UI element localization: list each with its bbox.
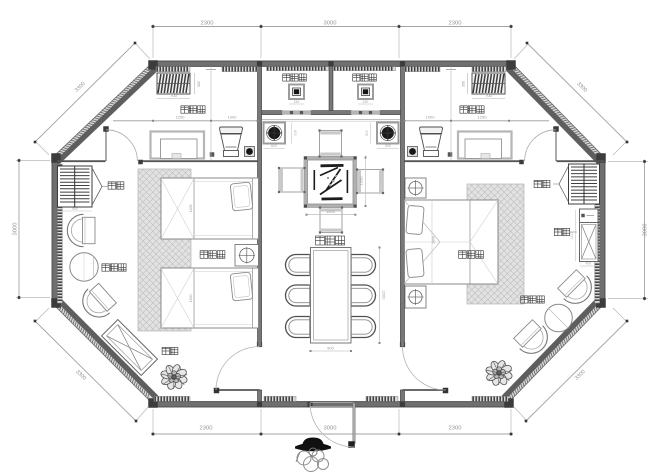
svg-text:900: 900	[327, 346, 334, 351]
svg-text:400: 400	[586, 262, 592, 266]
svg-text:1000: 1000	[228, 115, 238, 120]
svg-text:600: 600	[385, 144, 391, 148]
svg-text:2300: 2300	[449, 426, 462, 432]
svg-text:1000: 1000	[426, 115, 436, 120]
svg-text:3000: 3000	[324, 21, 337, 27]
svg-text:2300: 2300	[201, 21, 214, 27]
svg-text:600: 600	[293, 130, 297, 136]
svg-text:350: 350	[197, 81, 201, 87]
svg-text:600: 600	[271, 144, 277, 148]
svg-text:1250: 1250	[176, 115, 186, 120]
svg-text:1500: 1500	[359, 176, 364, 186]
svg-text:2300: 2300	[200, 426, 213, 432]
svg-text:150: 150	[294, 100, 300, 104]
svg-text:600: 600	[365, 130, 369, 136]
svg-text:3000: 3000	[324, 426, 337, 432]
svg-text:350: 350	[462, 81, 466, 87]
svg-text:1200: 1200	[189, 205, 193, 213]
svg-text:1200: 1200	[189, 295, 193, 303]
svg-text:1250: 1250	[478, 115, 488, 120]
svg-text:3000: 3000	[643, 224, 649, 237]
svg-text:1500: 1500	[326, 209, 336, 214]
svg-text:1800: 1800	[432, 236, 436, 244]
svg-text:900: 900	[72, 207, 78, 211]
svg-text:700: 700	[485, 93, 493, 98]
svg-text:2200: 2200	[382, 291, 387, 301]
svg-text:700: 700	[170, 93, 178, 98]
svg-text:2300: 2300	[449, 21, 462, 27]
svg-text:150: 150	[363, 100, 369, 104]
svg-text:3000: 3000	[13, 223, 19, 236]
svg-text:1100: 1100	[570, 232, 574, 239]
